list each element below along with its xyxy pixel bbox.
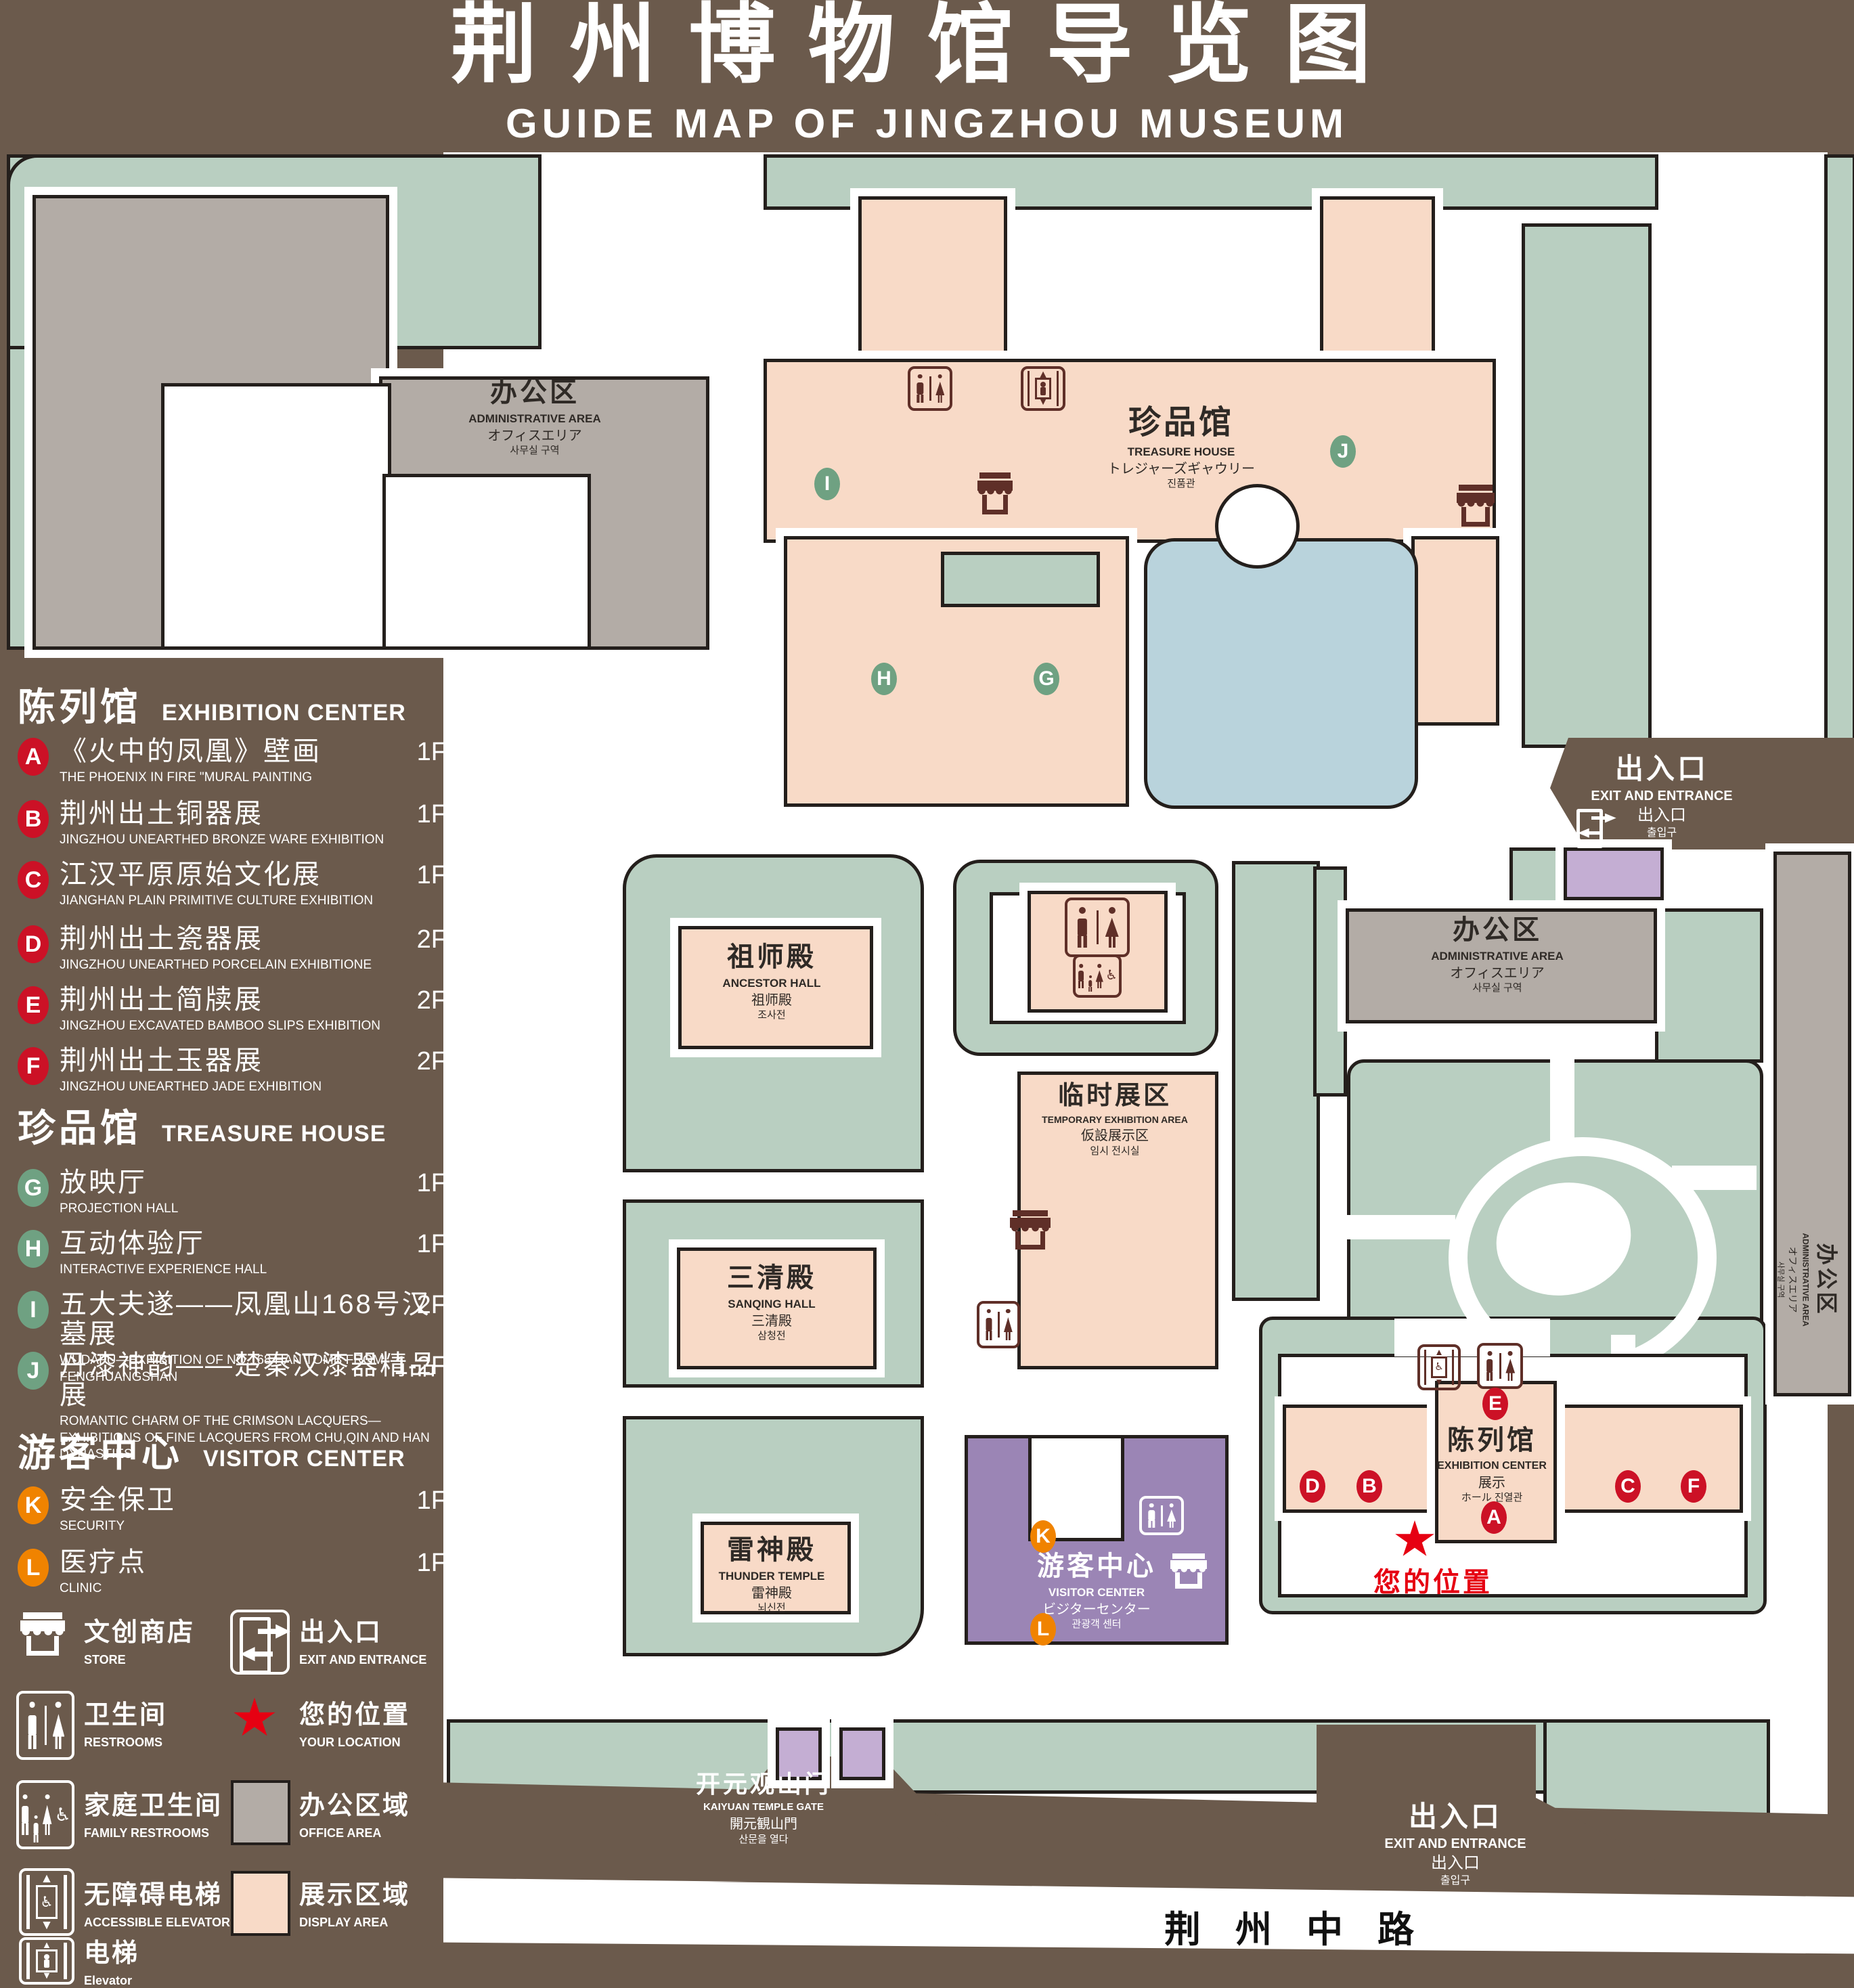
legend-row-K: K 安全保卫SECURITY 1F: [18, 1485, 456, 1535]
map-badge-G: G: [1034, 663, 1059, 695]
legend-store-label: 文创商店STORE: [84, 1618, 195, 1667]
label-admin-strip: 办公区ADMINISTRATIVE AREAオフィスエリア사무실 구역: [1776, 1151, 1838, 1409]
exit-icon: [230, 1610, 290, 1675]
lawn-bottom-band-right: [1543, 1719, 1770, 1822]
office-area-swatch: [231, 1780, 290, 1845]
building-treasure-east-wing: [1411, 536, 1499, 726]
legend-family-restrooms-label: 家庭卫生间FAMILY RESTROOMS: [84, 1791, 223, 1840]
display-area-swatch: [231, 1871, 290, 1936]
restrooms-icon: [1139, 1496, 1184, 1535]
legend-accessible-elevator-label: 无障碍电梯ACCESSIBLE ELEVATOR: [84, 1880, 230, 1930]
legend-section-exhibition-center: 陈列馆EXHIBITION CENTER: [18, 677, 406, 732]
map-badge-J: J: [1330, 435, 1356, 468]
legend-section-treasure-house: 珍品馆TREASURE HOUSE: [18, 1098, 386, 1153]
store-icon: [977, 472, 1013, 514]
label-kaiyuan-gate: 开元观山门KAIYUAN TEMPLE GATE開元観山門산문을 열다: [662, 1771, 865, 1845]
label-temporary-exhibition: 临时展区TEMPORARY EXHIBITION AREA仮設展示区임시 전시실: [1023, 1082, 1206, 1157]
guide-map-poster: { "title": {"zh": "荆州博物馆导览图", "en": "GUI…: [0, 0, 1854, 1982]
store-icon: [1457, 485, 1495, 527]
park-path-north: [1550, 1059, 1574, 1144]
legend-row-D: D 荆州出土瓷器展JINGZHOU UNEARTHED PORCELAIN EX…: [18, 924, 456, 974]
accessible-elevator-icon: ♿▲▼: [1417, 1344, 1461, 1390]
map-badge-B: B: [1356, 1470, 1382, 1503]
legend-exit-label: 出入口EXIT AND ENTRANCE: [299, 1618, 426, 1667]
lawn-admin2-right: [1655, 908, 1763, 1063]
label-thunder-temple: 雷神殿THUNDER TEMPLE雷神殿뇌신전: [684, 1535, 860, 1614]
map-badge-D: D: [1300, 1470, 1325, 1503]
building-treasure-arm-2: [1320, 196, 1435, 372]
admin-courtyard-2: [382, 474, 591, 650]
family-restroom-icon: ♿: [16, 1780, 74, 1849]
label-admin-west: 办公区ADMINISTRATIVE AREAオフィスエリア사무실 구역: [433, 378, 636, 457]
legend-elevator-label: 电梯Elevator: [84, 1939, 139, 1988]
legend-restrooms-label: 卫生间RESTROOMS: [84, 1700, 167, 1750]
map-badge-I: I: [814, 468, 840, 500]
map-badge-A: A: [1481, 1501, 1507, 1534]
label-exhibition-center: 陈列馆EXHIBITION CENTER展示ホール 진열관: [1411, 1426, 1573, 1504]
map-badge-H: H: [871, 663, 897, 695]
store-icon: [20, 1612, 65, 1656]
building-northeast-annex: [1564, 847, 1664, 900]
family-restroom-icon: ♿: [1073, 954, 1122, 998]
lawn-center-strip: [1232, 861, 1320, 1301]
accessible-elevator-icon: ♿▲▼: [19, 1868, 74, 1936]
lake: [1144, 538, 1418, 809]
legend-row-L: L 医疗点CLINIC 1F: [18, 1547, 456, 1597]
label-visitor-center: 游客中心VISITOR CENTERビジターセンター관광객 센터: [995, 1551, 1198, 1631]
treasure-inner-lawn: [941, 552, 1100, 607]
legend-section-visitor-center: 游客中心VISITOR CENTER: [18, 1423, 405, 1478]
map-badge-C: C: [1615, 1470, 1641, 1503]
restrooms-icon: [977, 1301, 1020, 1348]
your-location-star-icon: [233, 1698, 276, 1740]
page-title: 荆州博物馆导览图: [0, 0, 1854, 91]
lake-path-notch: [1215, 484, 1300, 569]
legend-row-C: C 江汉平原原始文化展JIANGHAN PLAIN PRIMITIVE CULT…: [18, 860, 456, 910]
label-exit-south: 出入口EXIT AND ENTRANCE出入口출입구: [1347, 1801, 1564, 1887]
label-treasure-house: 珍品馆TREASURE HOUSEトレジャーズギャウリー진품관: [1039, 405, 1323, 490]
page-subtitle: GUIDE MAP OF JINGZHOU MUSEUM: [0, 100, 1854, 147]
park-path-east: [1672, 1166, 1757, 1190]
building-treasure-arm-1: [858, 196, 1007, 372]
map-badge-E: E: [1482, 1388, 1508, 1420]
map-badge-K: K: [1030, 1520, 1056, 1553]
legend-row-A: A 《火中的凤凰》壁画THE PHOENIX IN FIRE "MURAL PA…: [18, 736, 456, 787]
store-icon: [1010, 1210, 1051, 1250]
road-label: 荆 州 中 路: [1164, 1899, 1426, 1953]
restrooms-icon: [1477, 1343, 1523, 1389]
your-location-label: 您的位置: [1344, 1560, 1522, 1599]
legend-row-H: H 互动体验厅INTERACTIVE EXPERIENCE HALL 1F: [18, 1229, 456, 1279]
legend-office-area-label: 办公区域OFFICE AREA: [299, 1791, 410, 1840]
label-ancestor-hall: 祖师殿ANCESTOR HALL祖师殿조사전: [684, 942, 860, 1021]
label-exit-northeast: 出入口EXIT AND ENTRANCE出入口출입구: [1553, 753, 1770, 839]
lawn-right-column: [1522, 223, 1652, 748]
map-badge-F: F: [1681, 1470, 1706, 1503]
legend-row-G: G 放映厅PROJECTION HALL 1F: [18, 1168, 456, 1218]
building-exhibition-east-wing: [1550, 1405, 1743, 1513]
admin-courtyard-1: [161, 383, 391, 650]
label-admin-east: 办公区ADMINISTRATIVE AREAオフィスエリア사무실 구역: [1396, 915, 1599, 994]
restrooms-icon: [16, 1691, 74, 1760]
legend-display-area-label: 展示区域DISPLAY AREA: [299, 1880, 410, 1930]
legend-badge-A: A: [18, 738, 49, 776]
restrooms-icon: [1065, 898, 1130, 957]
legend-your-location-label: 您的位置YOUR LOCATION: [299, 1700, 410, 1750]
legend-row-F: F 荆州出土玉器展JINGZHOU UNEARTHED JADE EXHIBIT…: [18, 1046, 456, 1096]
legend-row-E: E 荆州出土简牍展JINGZHOU EXCAVATED BAMBOO SLIPS…: [18, 985, 456, 1035]
restrooms-icon: [908, 366, 952, 411]
elevator-icon: ▲▼: [19, 1937, 74, 1985]
legend-row-B: B 荆州出土铜器展JINGZHOU UNEARTHED BRONZE WARE …: [18, 799, 456, 849]
park-path-west: [1347, 1215, 1455, 1239]
lawn-admin2-left: [1313, 866, 1347, 1097]
label-sanqing-hall: 三清殿SANQING HALL三清殿삼청전: [684, 1263, 860, 1342]
